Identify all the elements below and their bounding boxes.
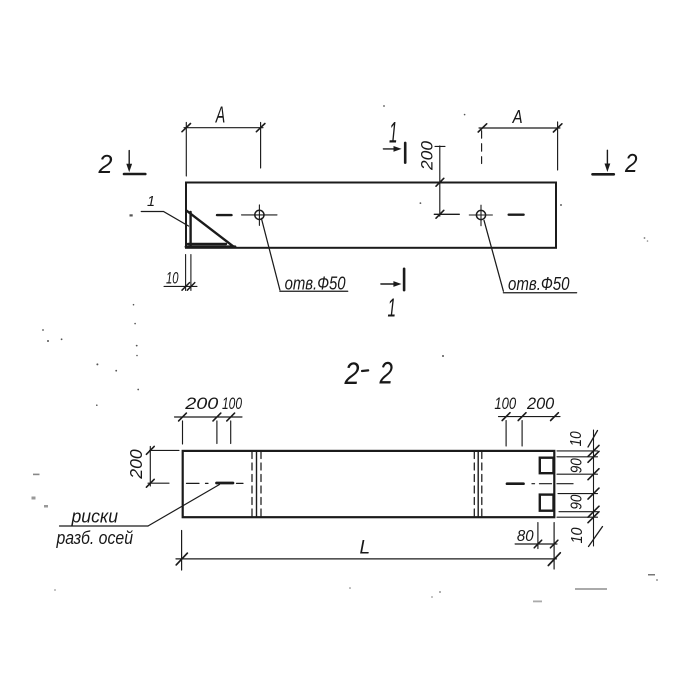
svg-text:отв.Ф50: отв.Ф50 (508, 273, 570, 294)
svg-text:A: A (215, 101, 226, 127)
svg-text:90: 90 (569, 458, 586, 473)
svg-text:10: 10 (568, 431, 585, 446)
svg-text:1: 1 (389, 116, 398, 149)
svg-text:риски: риски (71, 507, 118, 527)
svg-text:2: 2 (344, 355, 360, 391)
svg-text:90: 90 (569, 494, 586, 509)
svg-text:200: 200 (526, 395, 555, 413)
svg-text:отв.Ф50: отв.Ф50 (285, 272, 347, 293)
svg-text:1: 1 (147, 194, 155, 210)
svg-text:2: 2 (98, 149, 113, 179)
svg-text:1: 1 (388, 292, 397, 322)
svg-text:разб. осей: разб. осей (56, 528, 133, 548)
svg-text:L: L (360, 538, 371, 559)
svg-text:100: 100 (494, 395, 516, 413)
svg-text:10: 10 (166, 269, 179, 288)
svg-text:2: 2 (624, 148, 638, 178)
svg-text:200: 200 (419, 140, 437, 171)
svg-text:200: 200 (184, 395, 219, 413)
svg-text:80: 80 (517, 528, 534, 545)
svg-text:10: 10 (569, 527, 586, 543)
svg-text:2: 2 (379, 355, 394, 391)
svg-text:A: A (512, 107, 523, 127)
svg-text:200: 200 (126, 449, 146, 480)
svg-text:100: 100 (222, 395, 243, 413)
